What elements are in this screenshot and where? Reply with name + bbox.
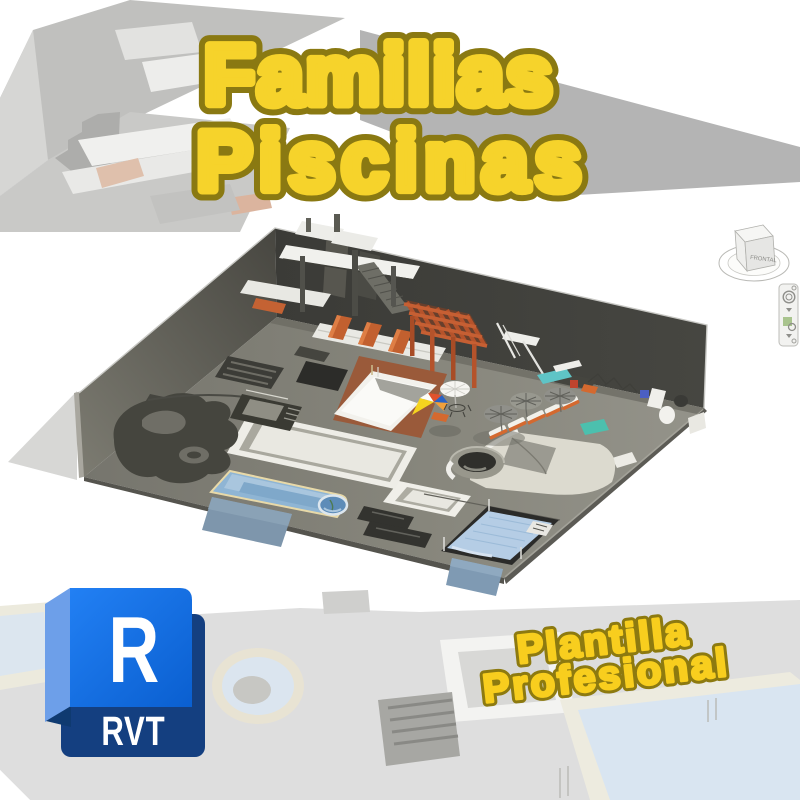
svg-text:R: R: [108, 597, 159, 702]
svg-text:RVT: RVT: [101, 708, 165, 754]
svg-text:Familias: Familias: [204, 28, 555, 122]
svg-text:Piscinas: Piscinas: [196, 114, 587, 208]
